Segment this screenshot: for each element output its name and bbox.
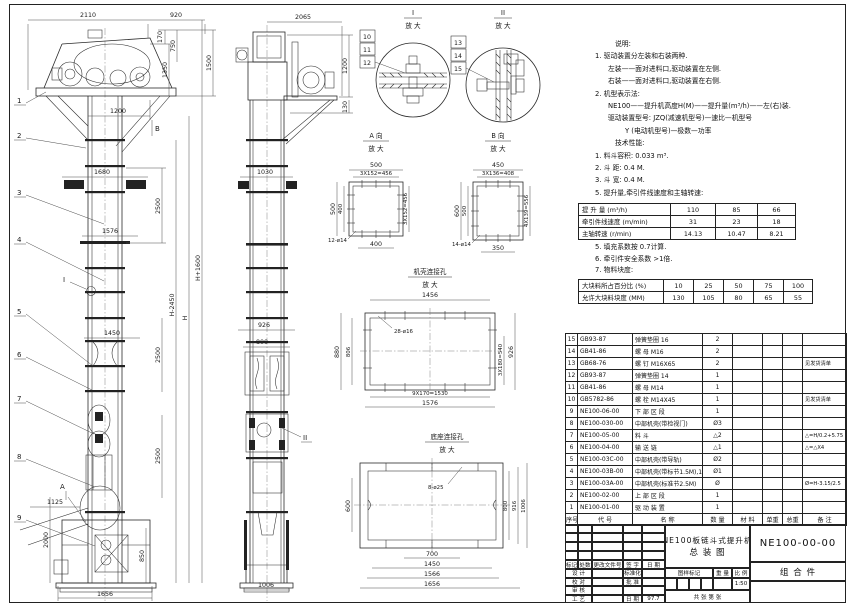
drawing-sheet: 2110 920 170 750 1350 1500 1200 B 1680 2… xyxy=(0,0,850,609)
note-line: 右装——面对进料口,驱动装置在右侧. xyxy=(608,75,846,87)
bom-total-weight xyxy=(783,418,803,430)
bom-code: NE100-01-00 xyxy=(578,502,633,514)
bom-material xyxy=(733,490,763,502)
capacity-value: 14.13 xyxy=(671,228,716,240)
bom-unit-weight xyxy=(763,430,783,442)
capacity-value: 66 xyxy=(758,204,796,216)
bom-row: 2 NE100-02-00 上 部 区 段 1 xyxy=(566,490,847,502)
bom-no: 3 xyxy=(566,478,578,490)
bom-name: 螺 钉 M16X65 xyxy=(633,358,703,370)
bom-note xyxy=(803,454,847,466)
bom-name: 螺 母 M14 xyxy=(633,382,703,394)
bom-unit-weight xyxy=(763,394,783,406)
lump-value: 75 xyxy=(754,280,784,292)
bom-material xyxy=(733,442,763,454)
bom-code: GB41-86 xyxy=(578,346,633,358)
bom-note: △=△X4 xyxy=(803,442,847,454)
bom-code: NE100-06-00 xyxy=(578,406,633,418)
lump-value: 50 xyxy=(724,280,754,292)
bom-unit-weight xyxy=(763,478,783,490)
bom-qty: 1 xyxy=(703,490,733,502)
bom-note xyxy=(803,418,847,430)
notes-block: 说明: 1. 驱动装置分左装和右装两种. 左装——面对进料口,驱动装置在左侧. … xyxy=(570,38,846,199)
rev-header: 日 期 xyxy=(642,560,665,569)
bom-code: GB41-86 xyxy=(578,382,633,394)
lump-value: 80 xyxy=(724,292,754,304)
drawing-title-box: NE100板链斗式提升机 总 装 图 xyxy=(665,524,750,568)
bom-row: 14 GB41-86 螺 母 M16 2 xyxy=(566,346,847,358)
notes-block-2: 5. 填充系数按 0.7计算. 6. 牵引件安全系数 >1倍. 7. 物料块度: xyxy=(570,242,846,277)
bom-qty: Ø3 xyxy=(703,418,733,430)
bom-total-weight xyxy=(783,430,803,442)
bom-unit-weight xyxy=(763,334,783,346)
note-line: 3. 斗 宽: 0.4 M. xyxy=(595,174,846,186)
bom-unit-weight xyxy=(763,466,783,478)
bom-total-weight xyxy=(783,490,803,502)
bom-material xyxy=(733,478,763,490)
note-line: 2. 机型表示法: xyxy=(595,88,846,100)
capacity-value: 8.21 xyxy=(758,228,796,240)
bom-row: 4 NE100-03B-00 中部机壳(带标节1.5M),1(M) Ø1 xyxy=(566,466,847,478)
bom-row: 1 NE100-01-00 驱 动 装 置 1 xyxy=(566,502,847,514)
bom-note xyxy=(803,466,847,478)
bom-row: 12 GB93-87 弹簧垫圈 14 1 xyxy=(566,370,847,382)
bom-name: 料 斗 xyxy=(633,430,703,442)
bom-material xyxy=(733,394,763,406)
rev-header: 签 字 xyxy=(623,560,642,569)
lump-value: 130 xyxy=(664,292,694,304)
bom-name: 螺 母 M16 xyxy=(633,346,703,358)
note-line: 1. 料斗容积: 0.033 m³. xyxy=(595,150,846,162)
bom-note: 见发货清单 xyxy=(803,358,847,370)
bom-unit-weight xyxy=(763,490,783,502)
bom-no: 8 xyxy=(566,418,578,430)
scale-value: 1:50 xyxy=(732,578,750,590)
bom-code: GB68-76 xyxy=(578,358,633,370)
sig-value xyxy=(642,578,665,587)
bom-material xyxy=(733,418,763,430)
bom-code: NE100-04-00 xyxy=(578,442,633,454)
bom-material xyxy=(733,346,763,358)
bom-note xyxy=(803,370,847,382)
stamp-header: 图样标记 xyxy=(665,568,713,578)
rev-header: 更改文件号 xyxy=(592,560,623,569)
bom-total-weight xyxy=(783,382,803,394)
capacity-value: 85 xyxy=(716,204,758,216)
stamp-header: 重 量 xyxy=(713,568,732,578)
bom-name: 螺 栓 M14X45 xyxy=(633,394,703,406)
bom-total-weight xyxy=(783,406,803,418)
bom-unit-weight xyxy=(763,358,783,370)
sig-value xyxy=(642,569,665,578)
bom-qty: 1 xyxy=(703,502,733,514)
note-line: 7. 物料块度: xyxy=(595,265,846,277)
capacity-value: 31 xyxy=(671,216,716,228)
note-line: 1. 驱动装置分左装和右装两种. xyxy=(595,50,846,62)
bom-name: 中部机壳(带导轨) xyxy=(633,454,703,466)
bom-code: GB5782-86 xyxy=(578,394,633,406)
lump-value: 10 xyxy=(664,280,694,292)
date-value: 97.7 xyxy=(642,595,665,604)
bom-no: 13 xyxy=(566,358,578,370)
bom-code: NE100-03B-00 xyxy=(578,466,633,478)
bom-qty: 1 xyxy=(703,370,733,382)
bom-qty: 1 xyxy=(703,394,733,406)
bom-unit-weight xyxy=(763,418,783,430)
bom-material xyxy=(733,430,763,442)
bom-no: 4 xyxy=(566,466,578,478)
bom-no: 12 xyxy=(566,370,578,382)
bom-row: 6 NE100-04-00 输 送 链 △1 △=△X4 xyxy=(566,442,847,454)
bom-qty: 1 xyxy=(703,382,733,394)
bom-name: 弹簧垫圈 14 xyxy=(633,370,703,382)
bom-name: 驱 动 装 置 xyxy=(633,502,703,514)
lump-size-table: 大块料所占百分比 (%) 10 25 50 75 100 允许大块料块度 (MM… xyxy=(578,279,813,304)
title-block: 标记 处数 更改文件号 签 字 日 期 设 计 标准化 校 对 批 准 审 核 … xyxy=(565,524,846,603)
bom-material xyxy=(733,370,763,382)
note-line: 左装——面对进料口,驱动装置在左侧. xyxy=(608,63,846,75)
bom-total-weight xyxy=(783,334,803,346)
bom-no: 9 xyxy=(566,406,578,418)
bom-unit-weight xyxy=(763,346,783,358)
bom-unit-weight xyxy=(763,442,783,454)
bom-total-weight xyxy=(783,466,803,478)
bom-name: 下 部 区 段 xyxy=(633,406,703,418)
bom-unit-weight xyxy=(763,370,783,382)
bom-no: 1 xyxy=(566,502,578,514)
bom-code: GB93-87 xyxy=(578,370,633,382)
sig-label xyxy=(623,586,642,595)
sig-label: 日 期 xyxy=(623,595,642,604)
bom-no: 15 xyxy=(566,334,578,346)
bom-name: 中部机壳(带检视门) xyxy=(633,418,703,430)
drawing-title-line2: 总 装 图 xyxy=(689,546,725,558)
sig-label: 批 准 xyxy=(623,578,642,587)
lump-row-label: 允许大块料块度 (MM) xyxy=(579,292,664,304)
note-line: 6. 牵引件安全系数 >1倍. xyxy=(595,254,846,266)
capacity-value: 23 xyxy=(716,216,758,228)
stamp-header: 比 例 xyxy=(732,568,750,578)
lump-value: 55 xyxy=(784,292,813,304)
bom-material xyxy=(733,502,763,514)
bom-code: GB93-87 xyxy=(578,334,633,346)
bom-material xyxy=(733,466,763,478)
bom-no: 6 xyxy=(566,442,578,454)
bom-code: NE100-02-00 xyxy=(578,490,633,502)
bom-row: 8 NE100-030-00 中部机壳(带检视门) Ø3 xyxy=(566,418,847,430)
capacity-value: 110 xyxy=(671,204,716,216)
bom-material xyxy=(733,454,763,466)
bom-note xyxy=(803,382,847,394)
bom-total-weight xyxy=(783,346,803,358)
sig-label: 工 艺 xyxy=(565,595,592,604)
bom-row: 7 NE100-05-00 料 斗 △2 △=H/0.2+5.75 xyxy=(566,430,847,442)
bom-note xyxy=(803,334,847,346)
bom-row: 5 NE100-03C-00 中部机壳(带导轨) Ø2 xyxy=(566,454,847,466)
bom-name: 弹簧垫圈 16 xyxy=(633,334,703,346)
sig-label: 审 核 xyxy=(565,586,592,595)
capacity-value: 10.47 xyxy=(716,228,758,240)
sheet-count: 共 张 第 张 xyxy=(665,590,750,603)
bom-total-weight xyxy=(783,454,803,466)
bom-total-weight xyxy=(783,394,803,406)
bom-qty: Ø2 xyxy=(703,454,733,466)
lump-row-label: 大块料所占百分比 (%) xyxy=(579,280,664,292)
lump-value: 105 xyxy=(694,292,724,304)
capacity-row-label: 主轴转速 (r/min) xyxy=(579,228,671,240)
bom-name: 中部机壳(带标节1.5M),1(M) xyxy=(633,466,703,478)
bom-qty: △1 xyxy=(703,442,733,454)
bom-unit-weight xyxy=(763,454,783,466)
bom-name: 输 送 链 xyxy=(633,442,703,454)
capacity-row-label: 牵引件线速度 (m/min) xyxy=(579,216,671,228)
sig-label: 设 计 xyxy=(565,569,592,578)
bom-qty: 1 xyxy=(703,406,733,418)
bom-no: 14 xyxy=(566,346,578,358)
bom-note xyxy=(803,406,847,418)
parts-list: 15 GB93-87 弹簧垫圈 16 2 14 GB41-86 螺 母 M16 xyxy=(565,333,846,524)
note-line: 驱动装置型号: JZQ(减速机型号)—速比—机型号 xyxy=(608,112,846,124)
bom-note xyxy=(803,490,847,502)
sig-label: 校 对 xyxy=(565,578,592,587)
bom-row: 3 NE100-03A-00 中部机壳(标准节2.5M) Ø Ø=H-3.15/… xyxy=(566,478,847,490)
bom-qty: 2 xyxy=(703,346,733,358)
bom-name: 中部机壳(标准节2.5M) xyxy=(633,478,703,490)
bom-qty: 2 xyxy=(703,334,733,346)
bom-unit-weight xyxy=(763,502,783,514)
bom-row: 13 GB68-76 螺 钉 M16X65 2 见发货清单 xyxy=(566,358,847,370)
bom-total-weight xyxy=(783,358,803,370)
note-line: 5. 填充系数按 0.7计算. xyxy=(595,242,846,254)
capacity-table: 提 升 量 (m³/h) 110 85 66 牵引件线速度 (m/min) 31… xyxy=(578,203,796,240)
lump-value: 65 xyxy=(754,292,784,304)
capacity-value: 18 xyxy=(758,216,796,228)
drawing-number: NE100-00-00 xyxy=(750,524,846,562)
tech-heading: 技术性能: xyxy=(615,137,846,149)
note-line: 2. 斗 距: 0.4 M. xyxy=(595,162,846,174)
note-line: 5. 提升量,牵引件线速度和主轴转速: xyxy=(595,187,846,199)
drawing-title-line1: NE100板链斗式提升机 xyxy=(665,535,750,546)
bom-material xyxy=(733,382,763,394)
bom-row: 10 GB5782-86 螺 栓 M14X45 1 见发货清单 xyxy=(566,394,847,406)
bom-code: NE100-030-00 xyxy=(578,418,633,430)
bom-total-weight xyxy=(783,502,803,514)
bom-qty: Ø1 xyxy=(703,466,733,478)
bom-name: 上 部 区 段 xyxy=(633,490,703,502)
bom-code: NE100-03A-00 xyxy=(578,478,633,490)
bom-unit-weight xyxy=(763,382,783,394)
bom-no: 11 xyxy=(566,382,578,394)
note-line: Y (电动机型号)—极数—功率 xyxy=(625,125,846,137)
bom-total-weight xyxy=(783,442,803,454)
bom-row: 15 GB93-87 弹簧垫圈 16 2 xyxy=(566,334,847,346)
bom-row: 9 NE100-06-00 下 部 区 段 1 xyxy=(566,406,847,418)
lump-value: 25 xyxy=(694,280,724,292)
bom-note: 见发货清单 xyxy=(803,394,847,406)
lump-value: 100 xyxy=(784,280,813,292)
bom-no: 10 xyxy=(566,394,578,406)
bom-no: 5 xyxy=(566,454,578,466)
notes-heading: 说明: xyxy=(615,38,846,50)
rev-header: 处数 xyxy=(578,560,592,569)
bom-qty: Ø xyxy=(703,478,733,490)
bom-qty: △2 xyxy=(703,430,733,442)
bom-note xyxy=(803,346,847,358)
bom-no: 7 xyxy=(566,430,578,442)
rev-header: 标记 xyxy=(565,560,578,569)
bom-row: 11 GB41-86 螺 母 M14 1 xyxy=(566,382,847,394)
bom-total-weight xyxy=(783,478,803,490)
bom-code: NE100-05-00 xyxy=(578,430,633,442)
bom-qty: 2 xyxy=(703,358,733,370)
bom-note: △=H/0.2+5.75 xyxy=(803,430,847,442)
bom-total-weight xyxy=(783,370,803,382)
bom-note: Ø=H-3.15/2.5 xyxy=(803,478,847,490)
bom-material xyxy=(733,334,763,346)
bom-no: 2 xyxy=(566,490,578,502)
bom-material xyxy=(733,358,763,370)
capacity-row-label: 提 升 量 (m³/h) xyxy=(579,204,671,216)
note-line: NE100——提升机高度H(M)——提升量(m³/h)——左(右)装. xyxy=(608,100,846,112)
bom-unit-weight xyxy=(763,406,783,418)
bom-note xyxy=(803,502,847,514)
sig-label: 标准化 xyxy=(623,569,642,578)
bom-code: NE100-03C-00 xyxy=(578,454,633,466)
part-type: 组 合 件 xyxy=(750,562,846,581)
bom-material xyxy=(733,406,763,418)
